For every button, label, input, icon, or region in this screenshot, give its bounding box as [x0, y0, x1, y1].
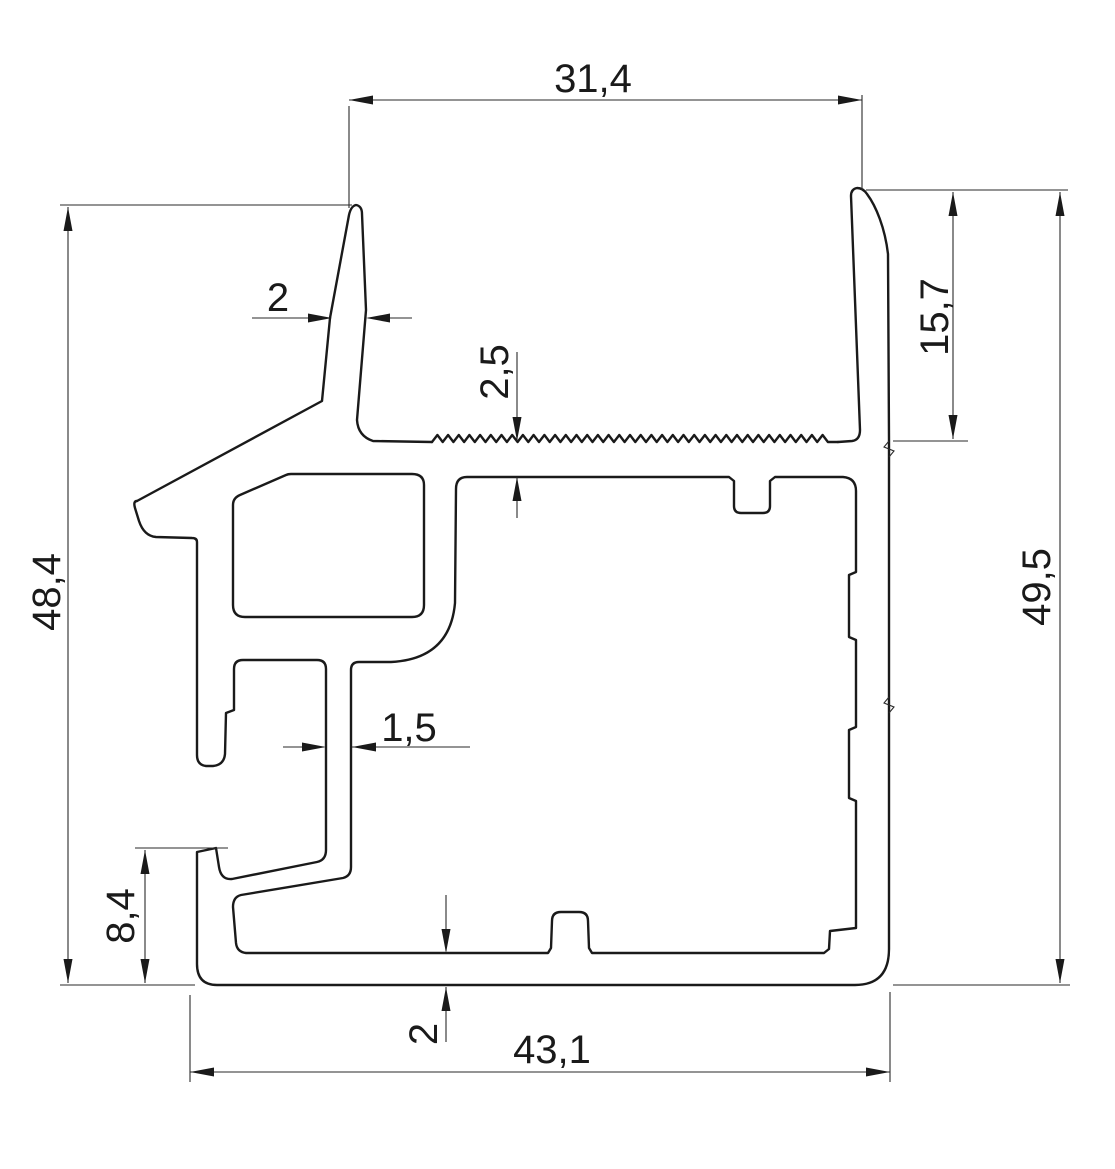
dimension-labels: 31,4 2 2,5 15,7 49,5 48,4 8,4 1,5 2 43,1 — [25, 57, 1059, 1072]
dim-label-bottom-width: 43,1 — [513, 1028, 591, 1072]
profile-outline-main-body — [134, 188, 889, 985]
profile-geometry — [134, 188, 894, 985]
dim-label-bottom-wall-thickness: 2 — [402, 1023, 446, 1045]
dimension-lines — [60, 95, 1070, 1082]
dim-label-left-height: 48,4 — [25, 553, 69, 631]
profile-drawing-svg: 31,4 2 2,5 15,7 49,5 48,4 8,4 1,5 2 43,1 — [0, 0, 1115, 1169]
screw-channel-cavity — [233, 474, 424, 617]
dim-label-left-fin-thickness: 2 — [267, 276, 289, 320]
technical-drawing-canvas: 31,4 2 2,5 15,7 49,5 48,4 8,4 1,5 2 43,1 — [0, 0, 1115, 1169]
dimension-arrowheads — [64, 96, 1065, 1077]
profile-outline-left-wing — [137, 205, 432, 501]
dim-label-right-fin-height: 15,7 — [913, 278, 957, 356]
dim-label-top-width: 31,4 — [554, 57, 632, 101]
dim-label-hook-height: 8,4 — [99, 888, 143, 944]
dim-label-right-height: 49,5 — [1015, 548, 1059, 626]
dim-label-top-wall-thickness: 2,5 — [473, 344, 517, 400]
dim-label-mid-wall-thickness: 1,5 — [381, 706, 437, 750]
dimension-measure-lines — [68, 100, 1060, 1072]
profile-serration — [432, 435, 838, 442]
extension-lines — [60, 95, 1070, 1082]
